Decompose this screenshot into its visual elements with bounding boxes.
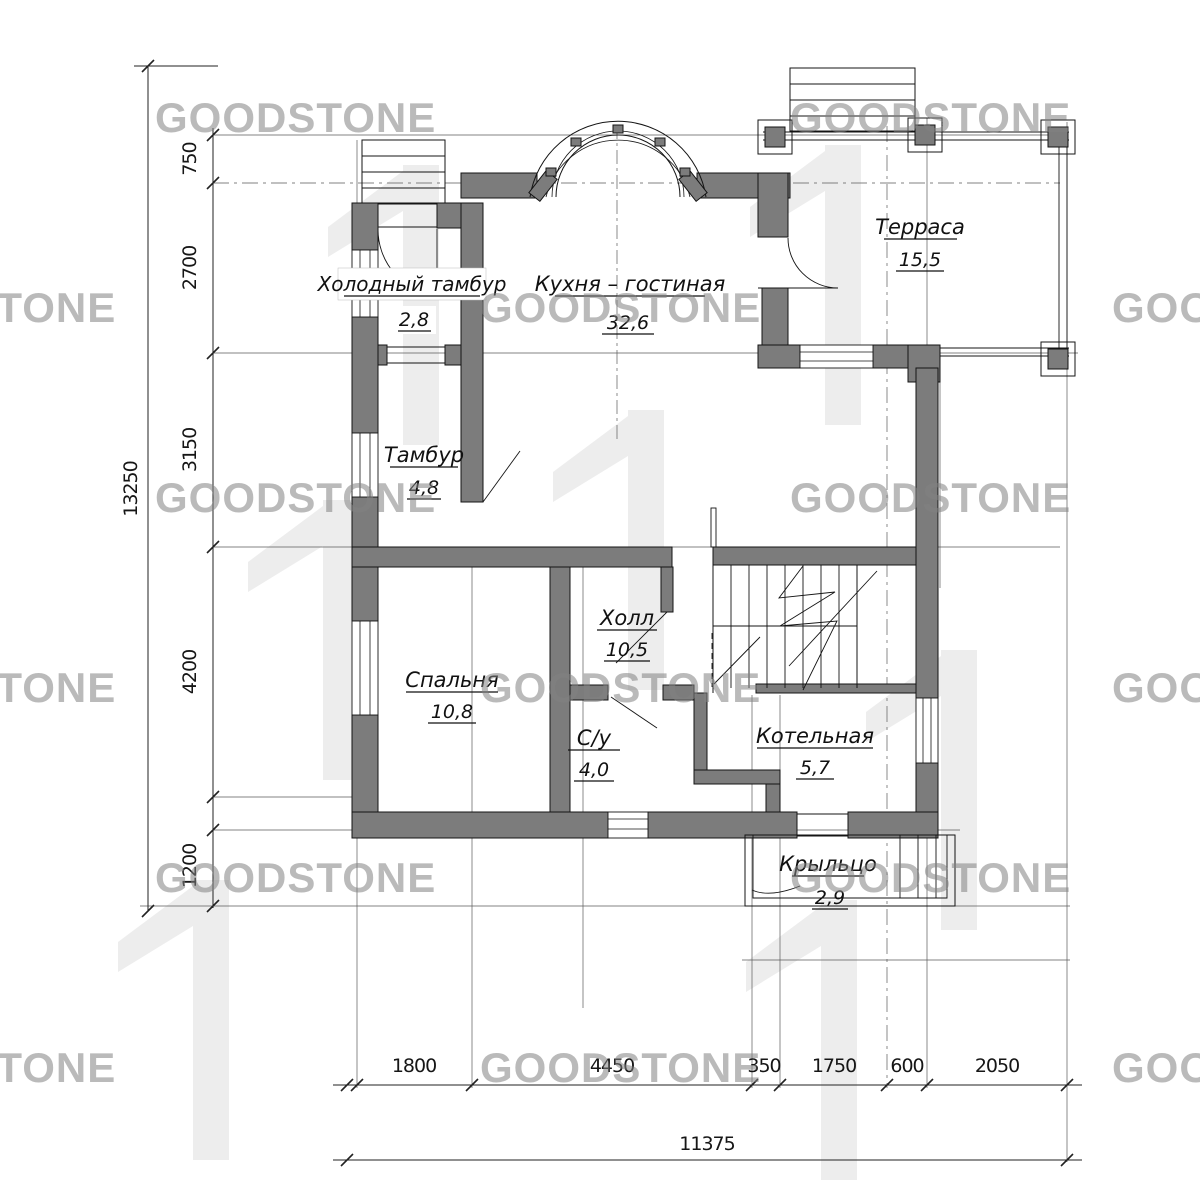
watermark-text: GOODSTONE <box>155 94 436 142</box>
watermark-text: GOODSTONE <box>0 1044 116 1092</box>
watermark-text: GOODSTONE <box>1112 284 1200 332</box>
watermark-text: GOODSTONE <box>480 284 761 332</box>
watermark-text: GOODSTONE <box>155 474 436 522</box>
watermark-text: GOODSTONE <box>1112 1044 1200 1092</box>
watermark-text: GOODSTONE <box>155 854 436 902</box>
watermark-text: GOODSTONE <box>0 664 116 712</box>
watermark-text: GOODSTONE <box>790 854 1071 902</box>
watermark-text: GOODSTONE <box>0 284 116 332</box>
watermark-text: GOODSTONE <box>1112 664 1200 712</box>
watermark-text: GOODSTONE <box>480 664 761 712</box>
floor-plan-canvas: 750 2700 3150 4200 1200 13250 1800 4450 … <box>0 0 1200 1200</box>
watermark-text: GOODSTONE <box>790 94 1071 142</box>
watermark-text: GOODSTONE <box>790 474 1071 522</box>
watermark-layer: GOODSTONE GOODSTONE GOODSTONE GOODSTONE … <box>0 0 1200 1200</box>
watermark-text: GOODSTONE <box>480 1044 761 1092</box>
